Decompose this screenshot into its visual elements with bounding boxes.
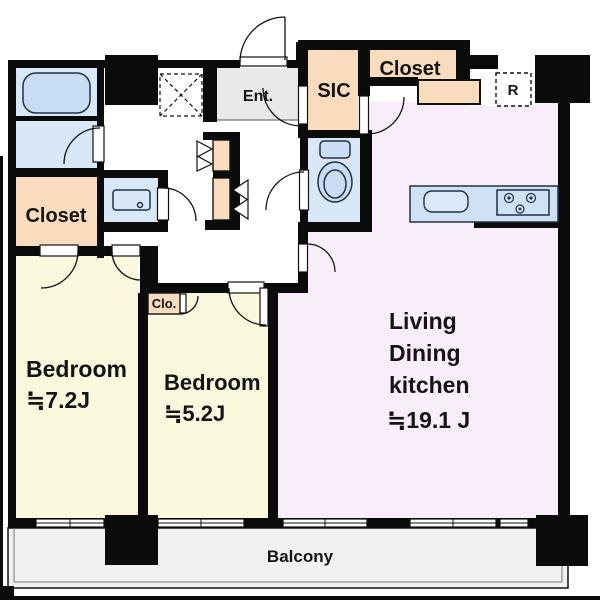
pillar bbox=[105, 515, 158, 565]
closet-top-label: Closet bbox=[379, 58, 440, 80]
sliding-window-icon bbox=[158, 519, 244, 527]
boundary-line bbox=[0, 596, 600, 600]
wall-segment bbox=[158, 178, 168, 188]
wall-segment bbox=[456, 55, 498, 69]
bifold-door-icon bbox=[197, 156, 212, 171]
bathtub-icon bbox=[23, 73, 90, 113]
bedroom2-door-gap bbox=[228, 282, 264, 293]
closet-left-label: Closet bbox=[25, 205, 86, 227]
door-swing-arc bbox=[266, 172, 304, 210]
entrance-label: Ent. bbox=[243, 88, 273, 105]
toilet-bowl bbox=[318, 162, 352, 202]
kitchen-sink-icon bbox=[424, 191, 468, 212]
bedroom2-size: ≒5.2J bbox=[164, 401, 225, 426]
washroom-floor bbox=[16, 121, 97, 168]
ldk-size: ≒19.1 J bbox=[387, 407, 470, 433]
wall-segment bbox=[16, 116, 98, 121]
closet-ldk-door-leaf bbox=[360, 96, 369, 134]
door-swing-arc bbox=[240, 17, 285, 62]
hall-storage-lower bbox=[213, 178, 230, 220]
wall-segment bbox=[558, 103, 570, 518]
wall-segment bbox=[298, 40, 470, 50]
closet-left-door-leaf bbox=[40, 245, 78, 256]
hall-storage-upper bbox=[213, 140, 230, 171]
wall-segment bbox=[97, 162, 104, 168]
floor-plan: Closet Closet SIC Ent. R Clo. Bedroom ≒7… bbox=[0, 0, 600, 600]
wall-segment bbox=[298, 50, 308, 86]
pillar bbox=[105, 55, 158, 105]
ldk-label-line1: Living bbox=[389, 308, 457, 334]
ceiling-hatch-icon bbox=[160, 74, 202, 116]
ldk-label-line3: kitchen bbox=[389, 372, 470, 398]
boundary-line bbox=[0, 156, 3, 600]
sliding-window-icon bbox=[283, 519, 367, 527]
ldk-floor-mid bbox=[308, 232, 558, 293]
entrance-door-leaf bbox=[240, 57, 287, 66]
wall-segment bbox=[298, 272, 308, 293]
wall-segment bbox=[138, 293, 148, 518]
clo-label: Clo. bbox=[152, 296, 177, 311]
wall-segment bbox=[78, 246, 112, 256]
sliding-window-icon bbox=[36, 519, 104, 527]
wall-segment bbox=[97, 60, 104, 126]
bedroom2-door-leaf bbox=[260, 288, 268, 326]
wall-segment bbox=[97, 168, 104, 258]
wall-segment bbox=[213, 171, 240, 178]
wall-segment bbox=[360, 134, 372, 232]
sliding-window-icon bbox=[500, 519, 528, 527]
wall-segment bbox=[358, 50, 370, 96]
refrigerator-label: R bbox=[508, 82, 519, 99]
bedroom1-label: Bedroom bbox=[26, 356, 127, 382]
wall-segment bbox=[8, 246, 40, 256]
sic-label: SIC bbox=[317, 80, 350, 102]
wall-segment bbox=[268, 293, 278, 518]
boundary-line bbox=[0, 586, 14, 600]
bifold-door-icon bbox=[197, 141, 212, 157]
wall-segment bbox=[8, 168, 104, 177]
wall-segment bbox=[298, 222, 372, 232]
wall-segment bbox=[203, 62, 217, 122]
washroom-door-leaf bbox=[93, 126, 104, 162]
toilet-door-leaf bbox=[300, 170, 309, 210]
wall-segment bbox=[148, 283, 228, 293]
bedroom1-door-leaf bbox=[112, 245, 140, 256]
powder-room-door-leaf bbox=[158, 188, 169, 220]
wall-segment bbox=[97, 170, 168, 178]
wall-segment bbox=[300, 138, 308, 170]
pillar bbox=[535, 55, 590, 103]
sic-door-leaf bbox=[299, 86, 308, 124]
wall-segment bbox=[300, 210, 308, 222]
pillar bbox=[536, 515, 588, 566]
wall-segment bbox=[158, 220, 168, 232]
closet-top-extension bbox=[418, 80, 480, 104]
balcony-label: Balcony bbox=[267, 547, 334, 566]
hall-ldk-door-leaf bbox=[299, 244, 308, 272]
bedroom1-size: ≒7.2J bbox=[26, 387, 90, 413]
wall-segment bbox=[205, 220, 240, 230]
sliding-window-icon bbox=[410, 519, 496, 527]
toilet-icon bbox=[318, 141, 352, 202]
wall-segment bbox=[8, 60, 16, 528]
ldk-label-line2: Dining bbox=[389, 340, 461, 366]
wall-segment bbox=[203, 132, 240, 140]
toilet-tank bbox=[320, 141, 350, 158]
bedroom2-label: Bedroom bbox=[164, 370, 261, 395]
